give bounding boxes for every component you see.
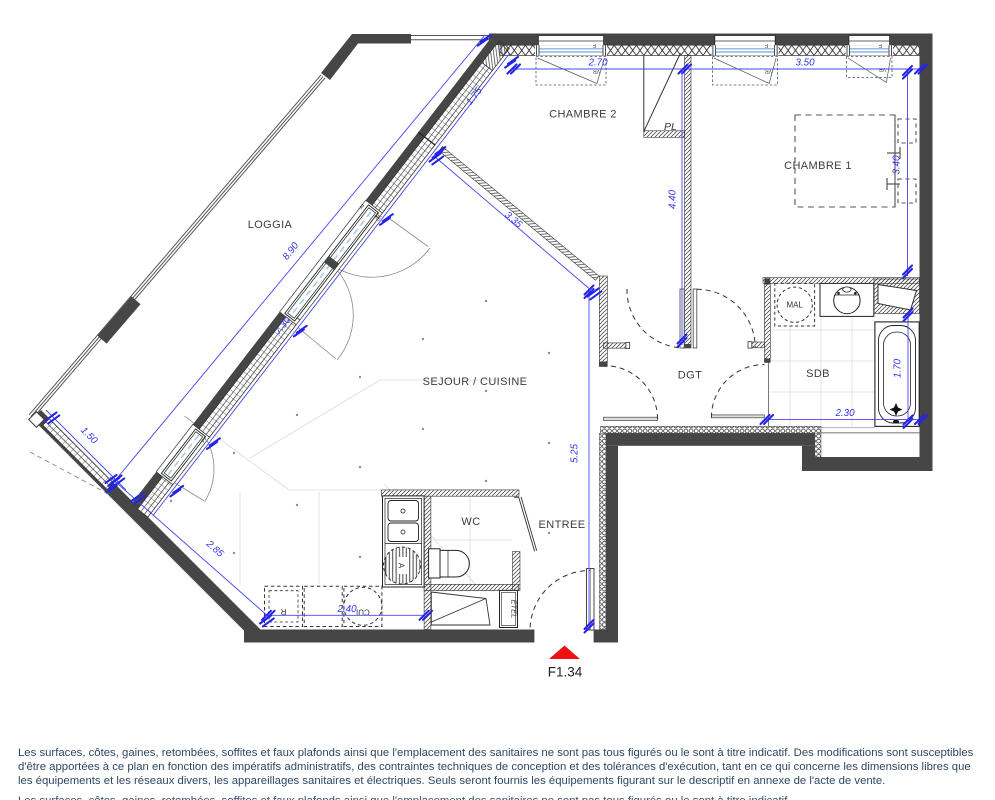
- svg-text:MAL: MAL: [786, 301, 803, 310]
- svg-text:les équipements et les réseaux: les équipements et les réseaux divers, l…: [18, 775, 885, 787]
- svg-text:WC: WC: [461, 516, 480, 528]
- svg-text:Les surfaces, côtes, gaines, r: Les surfaces, côtes, gaines, retombées, …: [18, 795, 791, 800]
- svg-text:R: R: [280, 607, 286, 616]
- svg-text:d'être apportées à ce plan en: d'être apportées à ce plan en fonction d…: [18, 761, 971, 773]
- svg-text:ENTREE: ENTREE: [538, 519, 585, 531]
- svg-text:LOGGIA: LOGGIA: [248, 219, 293, 231]
- svg-text:2.40: 2.40: [336, 604, 357, 615]
- svg-text:SDB: SDB: [806, 368, 830, 380]
- svg-text:ETEL: ETEL: [510, 600, 519, 619]
- svg-text:CHAMBRE 2: CHAMBRE 2: [549, 109, 617, 121]
- svg-text:3.40: 3.40: [892, 155, 903, 175]
- svg-text:1.70: 1.70: [893, 358, 904, 378]
- svg-text:2.70: 2.70: [587, 58, 608, 69]
- svg-text:A: A: [397, 563, 406, 569]
- svg-text:2.30: 2.30: [834, 408, 855, 419]
- svg-text:DGT: DGT: [678, 370, 702, 382]
- svg-text:F1.34: F1.34: [548, 665, 583, 680]
- svg-text:Les surfaces, côtes, gaines, r: Les surfaces, côtes, gaines, retombées, …: [18, 747, 974, 759]
- svg-text:CHAMBRE 1: CHAMBRE 1: [784, 160, 852, 172]
- svg-text:5.25: 5.25: [570, 443, 581, 463]
- svg-text:SEJOUR / CUISINE: SEJOUR / CUISINE: [423, 376, 528, 388]
- svg-text:4.40: 4.40: [668, 189, 679, 209]
- svg-text:3.50: 3.50: [795, 58, 815, 69]
- svg-text:PL: PL: [664, 121, 677, 133]
